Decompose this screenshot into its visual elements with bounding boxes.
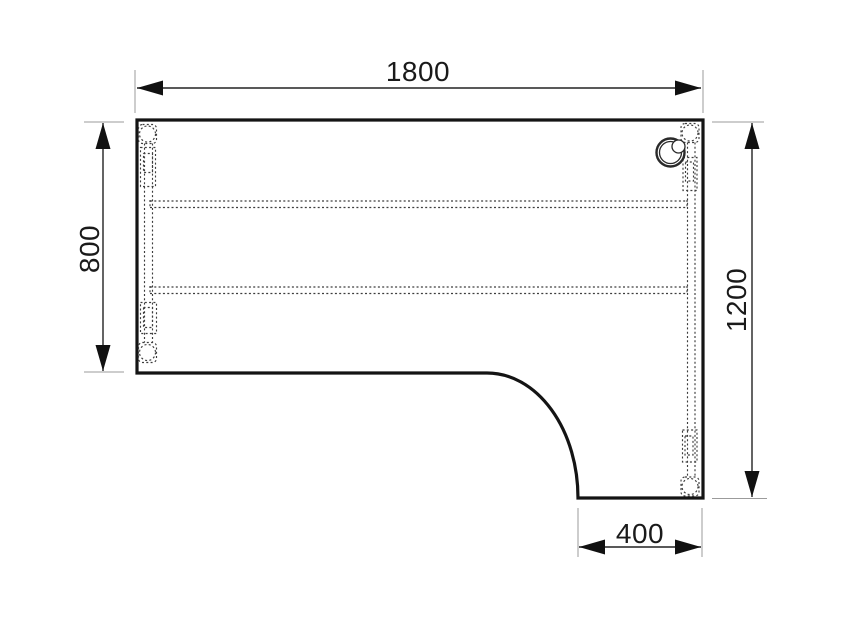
arrowhead-top-left: [137, 81, 163, 96]
arrowhead-top-right: [675, 81, 701, 96]
dimension-label-bottom: 400: [616, 518, 664, 549]
arrowhead-right-up: [745, 123, 760, 149]
arrowhead-bottom-right: [675, 540, 701, 555]
technical-drawing-canvas: 1800 800 1200 400: [0, 0, 859, 634]
cable-grommet-cap: [672, 140, 685, 153]
corner-desk-drawing: 1800 800 1200 400: [0, 0, 859, 634]
dimension-right-depth: 1200: [712, 122, 767, 499]
arrowhead-right-down: [745, 471, 760, 497]
arrowhead-left-up: [96, 123, 111, 149]
dimension-label-right: 1200: [721, 268, 752, 332]
dimension-label-top: 1800: [386, 56, 450, 87]
arrowhead-bottom-left: [579, 540, 605, 555]
dimension-label-left: 800: [74, 225, 105, 273]
dimension-top-width: 1800: [135, 56, 703, 113]
dimension-left-depth: 800: [74, 122, 124, 372]
desk-worktop-outline: [137, 120, 703, 498]
arrowhead-left-down: [96, 345, 111, 371]
dimension-bottom-width: 400: [578, 508, 702, 557]
